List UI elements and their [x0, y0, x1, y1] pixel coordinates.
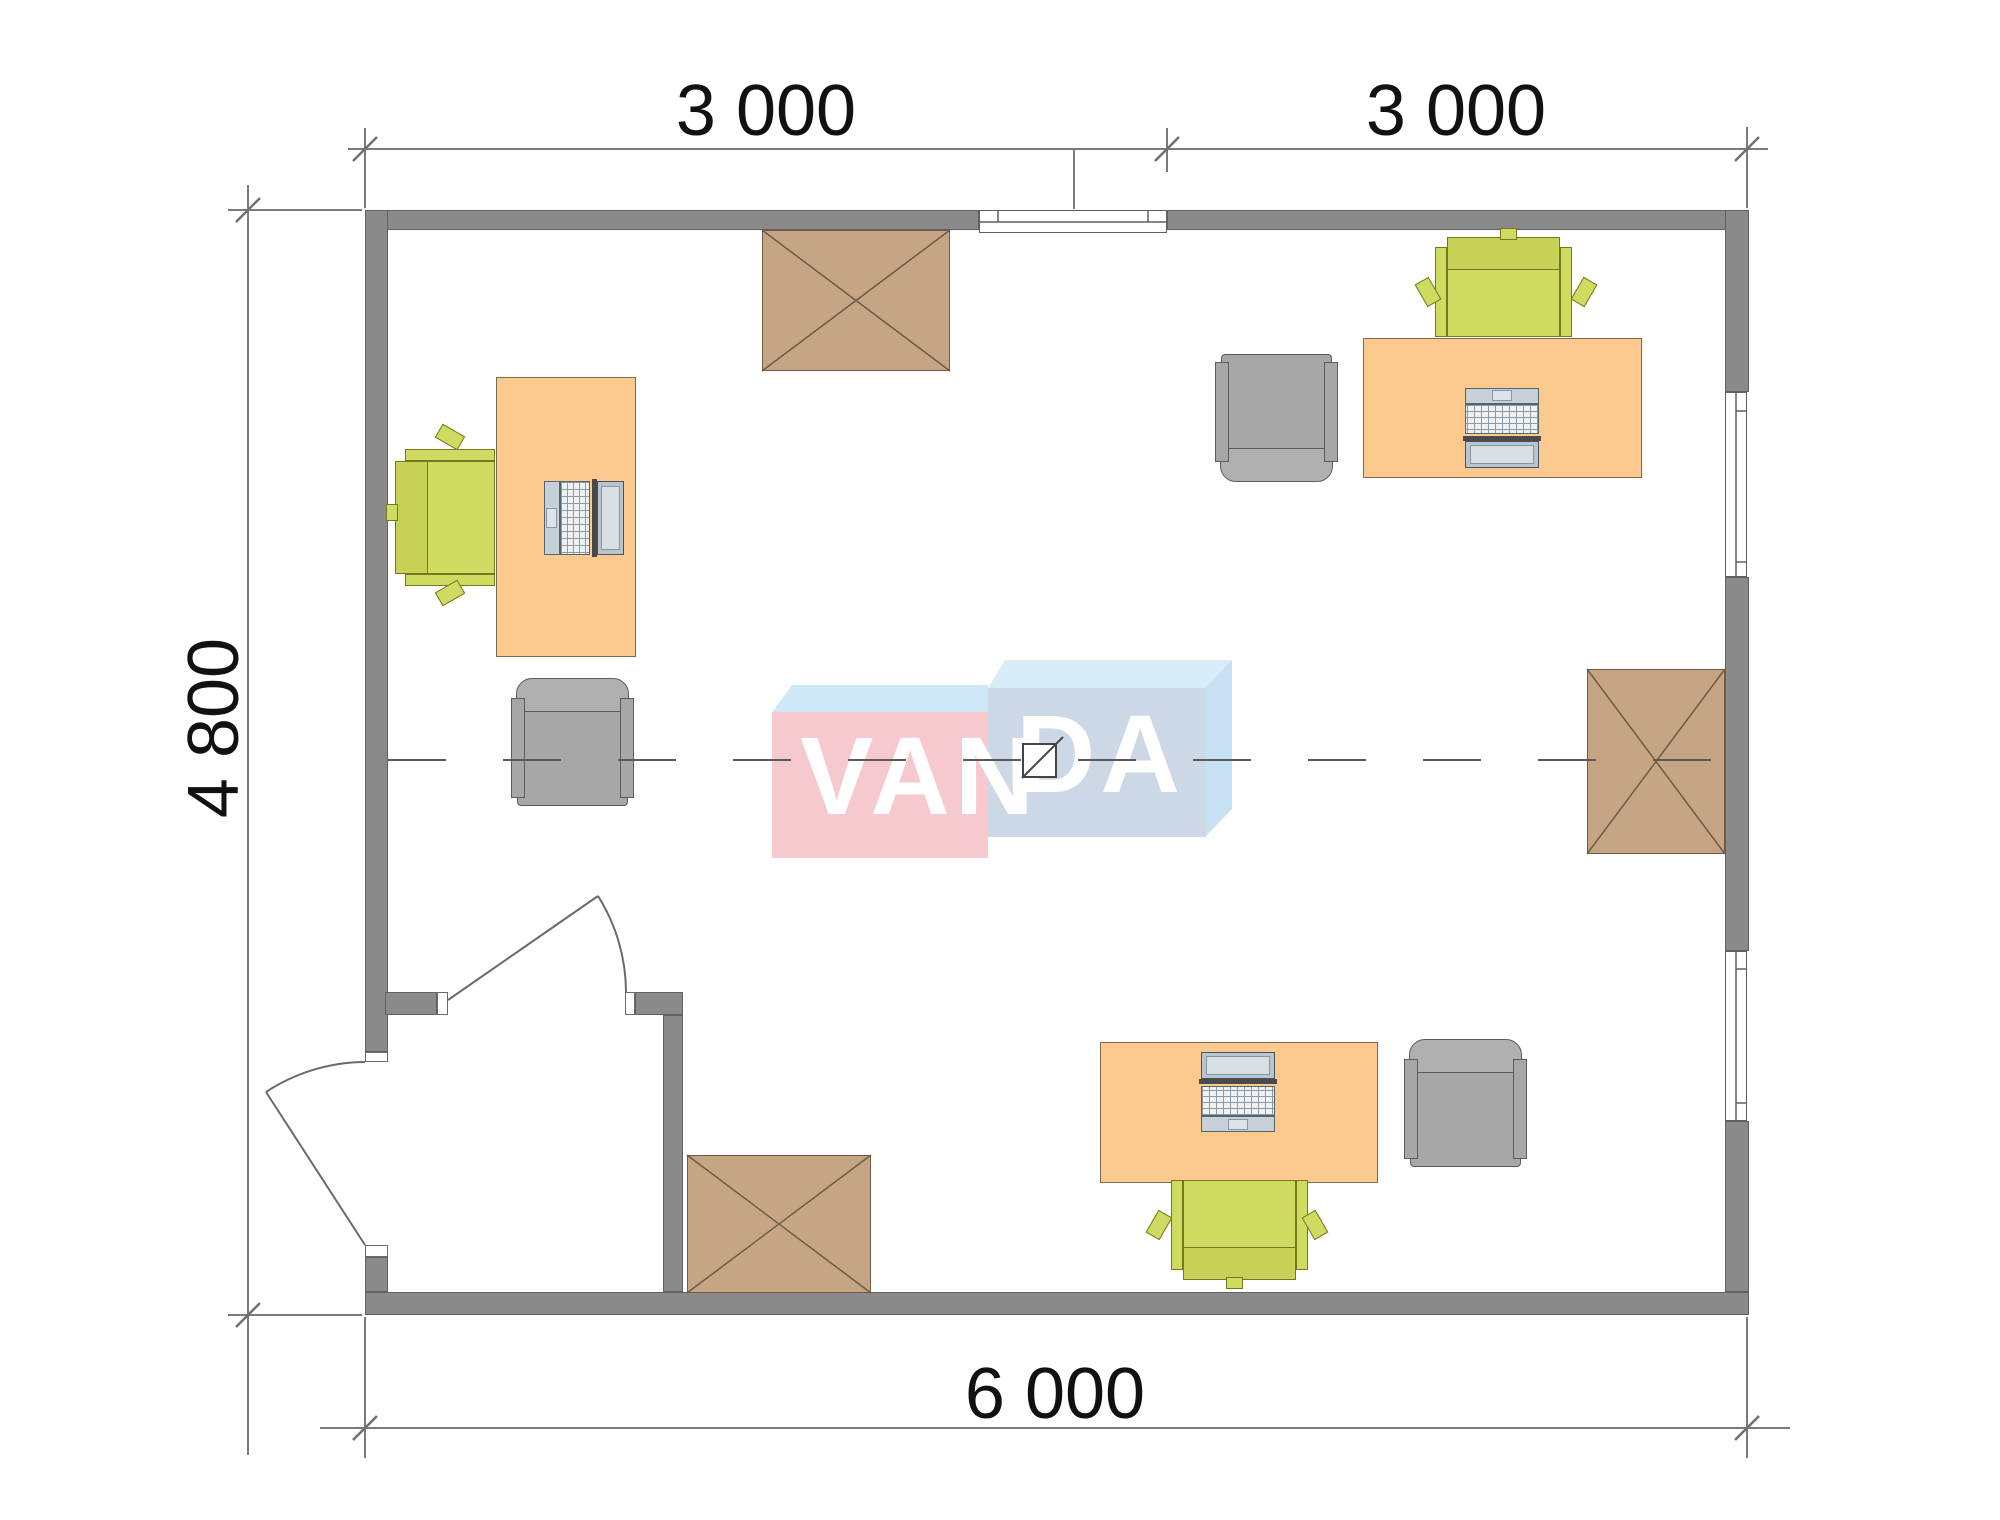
dimension-lines [228, 127, 1790, 1458]
dim-label-top-left: 3 000 [676, 75, 856, 147]
center-symbol-diagonal [1022, 737, 1063, 778]
doors [266, 896, 626, 1245]
interior-door-leaf [448, 896, 598, 1000]
floor-plan: VAN DA [0, 0, 2000, 1520]
line-work-layer [0, 0, 2000, 1520]
dim-label-left: 4 800 [178, 638, 250, 818]
entry-door-swing-arc [266, 1062, 365, 1092]
table-cross-lines [687, 230, 1725, 1293]
dimension-ticks [236, 137, 1759, 1440]
entry-door-leaf [266, 1092, 365, 1245]
dim-label-top-right: 3 000 [1366, 75, 1546, 147]
window-frame-lines [979, 210, 1747, 1121]
interior-door-swing-arc [598, 896, 626, 992]
dim-label-bottom: 6 000 [965, 1358, 1145, 1430]
